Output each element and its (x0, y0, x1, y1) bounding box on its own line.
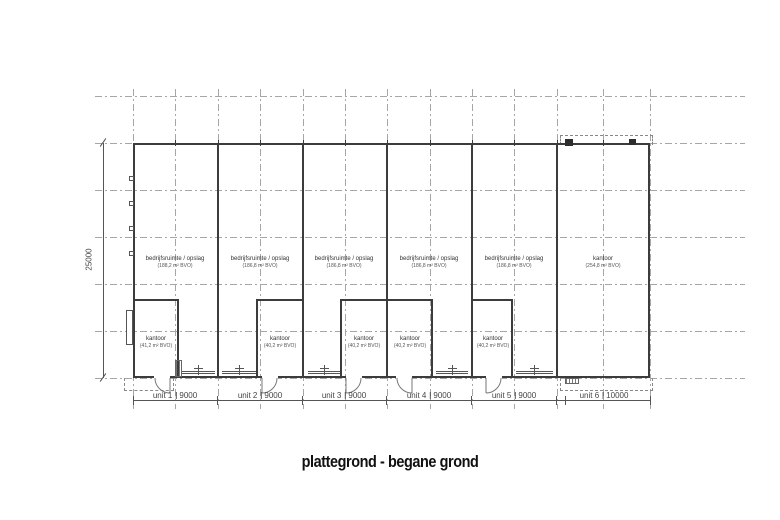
floor-plan-canvas: 25000 unit 19000 unit 29000 unit 39000 u… (0, 0, 780, 520)
unit4-size: 9000 (433, 391, 451, 400)
facade-anchor-2 (129, 201, 134, 206)
room-area: (254,8 m² BVO) (585, 263, 620, 270)
kantoor-label-unit2: kantoor (40,2 m² BVO) (264, 335, 296, 350)
room-label-unit1: bedrijfsruimte / opslag (188,2 m² BVO) (146, 255, 205, 270)
unit1-size: 9000 (179, 391, 197, 400)
dim-tick-6 (650, 396, 651, 405)
room-label-unit4: bedrijfsruimte / opslag (186,8 m² BVO) (400, 255, 459, 270)
unit4-name: unit 4 (407, 391, 427, 400)
column-top-2 (629, 139, 636, 145)
facade-anchor-1 (129, 176, 134, 181)
room-name: kantoor (140, 335, 172, 343)
facade-anchor-4 (129, 251, 134, 256)
dim-label-unit5: unit 59000 (492, 391, 536, 400)
dim-label-unit2: unit 29000 (238, 391, 282, 400)
room-area: (186,8 m² BVO) (400, 263, 459, 270)
dim-tick-1 (217, 396, 218, 405)
dim-tick-0 (133, 396, 134, 405)
dimension-line-left (103, 143, 104, 378)
dim-divider (175, 392, 176, 399)
dim-tick-4 (471, 396, 472, 405)
dimension-line-bottom (133, 400, 650, 401)
room-label-unit6: kantoor (254,8 m² BVO) (585, 255, 620, 270)
dim-tick-5b (565, 396, 566, 405)
room-label-unit2: bedrijfsruimte / opslag (186,8 m² BVO) (231, 255, 290, 270)
entrance-unit6 (565, 378, 579, 384)
unit6-size: 10000 (606, 391, 628, 400)
room-name: kantoor (585, 255, 620, 263)
facade-projection-left (126, 310, 133, 345)
kantoor-label-unit1: kantoor (41,2 m² BVO) (140, 335, 172, 350)
unit6-name: unit 6 (580, 391, 600, 400)
room-name: bedrijfsruimte / opslag (315, 255, 374, 263)
room-area: (40,2 m² BVO) (348, 343, 380, 350)
room-label-unit5: bedrijfsruimte / opslag (186,8 m² BVO) (485, 255, 544, 270)
kantoor-label-unit3: kantoor (40,2 m² BVO) (348, 335, 380, 350)
unit1-name: unit 1 (153, 391, 173, 400)
unit2-name: unit 2 (238, 391, 258, 400)
dim-divider (260, 392, 261, 399)
unit3-size: 9000 (348, 391, 366, 400)
meter-cupboard-unit1 (175, 360, 182, 377)
room-name: kantoor (394, 335, 426, 343)
room-name: kantoor (348, 335, 380, 343)
facade-anchor-3 (129, 226, 134, 231)
unit5-name: unit 5 (492, 391, 512, 400)
room-area: (188,2 m² BVO) (146, 263, 205, 270)
room-area: (186,8 m² BVO) (485, 263, 544, 270)
room-area: (41,2 m² BVO) (140, 343, 172, 350)
dim-label-unit1: unit 19000 (153, 391, 197, 400)
dim-label-unit3: unit 39000 (322, 391, 366, 400)
unit5-size: 9000 (518, 391, 536, 400)
dim-tick-5 (556, 396, 557, 405)
kantoor-label-unit4: kantoor (40,2 m² BVO) (394, 335, 426, 350)
drawing-title: plattegrond - begane grond (59, 452, 722, 472)
room-name: bedrijfsruimte / opslag (400, 255, 459, 263)
dim-divider (344, 392, 345, 399)
room-area: (40,2 m² BVO) (394, 343, 426, 350)
dim-label-unit6: unit 610000 (580, 391, 629, 400)
unit2-size: 9000 (264, 391, 282, 400)
room-name: kantoor (264, 335, 296, 343)
dim-tick-3 (386, 396, 387, 405)
dim-divider (429, 392, 430, 399)
dim-divider (602, 392, 603, 399)
dimension-depth-label: 25000 (85, 248, 94, 270)
room-area: (40,2 m² BVO) (264, 343, 296, 350)
dim-label-unit4: unit 49000 (407, 391, 451, 400)
room-name: bedrijfsruimte / opslag (231, 255, 290, 263)
door-swing-arcs (0, 0, 780, 520)
room-name: kantoor (477, 335, 509, 343)
room-area: (186,8 m² BVO) (231, 263, 290, 270)
kantoor-label-unit5: kantoor (40,2 m² BVO) (477, 335, 509, 350)
room-name: bedrijfsruimte / opslag (146, 255, 205, 263)
room-name: bedrijfsruimte / opslag (485, 255, 544, 263)
dim-divider (514, 392, 515, 399)
room-area: (186,8 m² BVO) (315, 263, 374, 270)
dim-tick-2 (302, 396, 303, 405)
room-area: (40,2 m² BVO) (477, 343, 509, 350)
column-top-1 (565, 139, 573, 146)
unit3-name: unit 3 (322, 391, 342, 400)
room-label-unit3: bedrijfsruimte / opslag (186,8 m² BVO) (315, 255, 374, 270)
